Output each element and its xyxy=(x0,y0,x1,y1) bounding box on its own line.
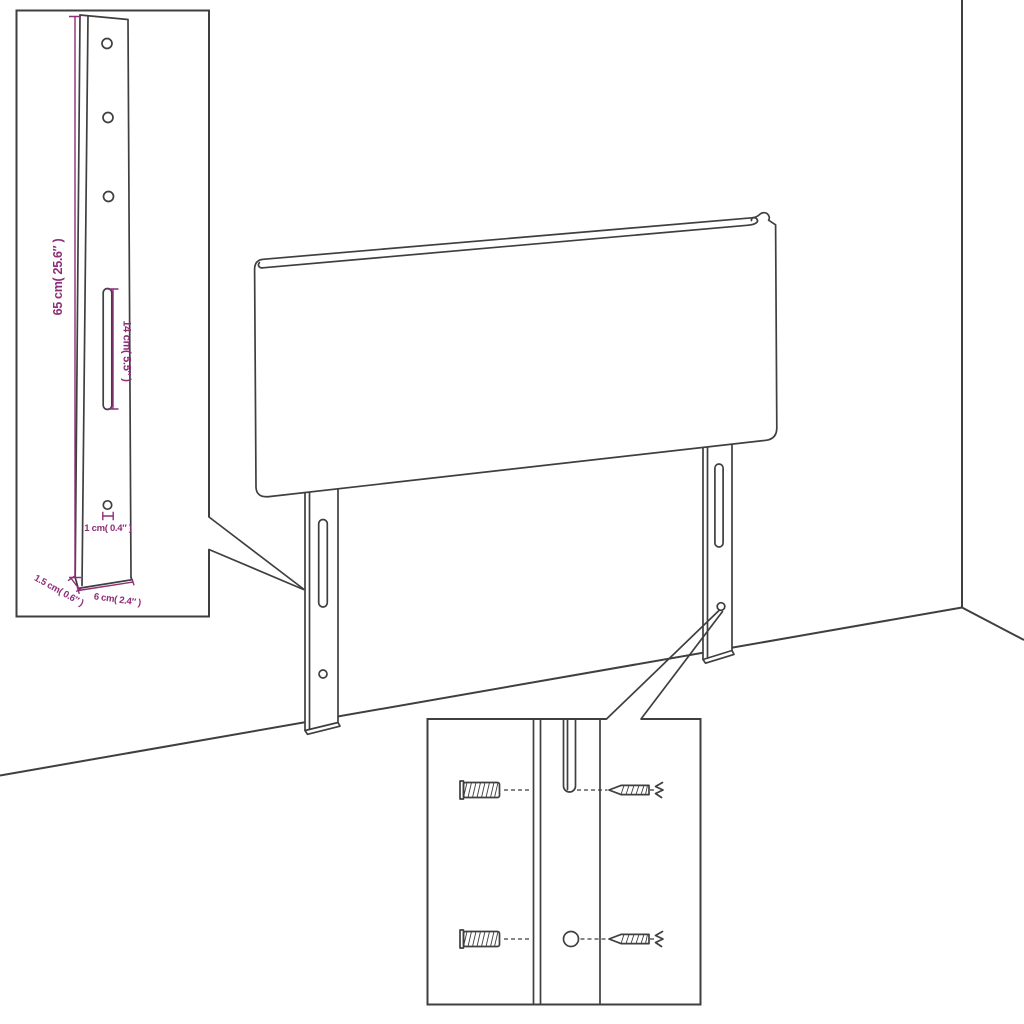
headboard-panel xyxy=(255,213,777,497)
bracket-hole-3 xyxy=(104,192,114,202)
floor-line-right xyxy=(962,608,1024,641)
callout-wedge-bottom-b xyxy=(641,612,723,720)
dimension-slot-label: 14 cm( 5.5″ ) xyxy=(121,320,133,382)
bracket-hole-2 xyxy=(103,113,113,123)
bracket-drawing xyxy=(75,15,131,588)
dimension-height-label: 65 cm( 25.6″ ) xyxy=(51,238,65,315)
dimension-hole-label: 1 cm( 0.4″ ) xyxy=(84,523,132,534)
detail-inset-mounting xyxy=(428,610,723,1005)
bracket-hole-1 xyxy=(102,39,112,49)
bracket-slot xyxy=(103,289,112,410)
bracket-small-hole xyxy=(103,501,111,509)
callout-wedge-left-b xyxy=(209,550,304,590)
headboard-dimension-diagram: 65 cm( 25.6″ ) 14 cm( 5.5″ ) 1 cm( 0.4″ … xyxy=(0,0,1024,1024)
diagram-canvas: 65 cm( 25.6″ ) 14 cm( 5.5″ ) 1 cm( 0.4″ … xyxy=(0,0,1024,1024)
dimension-width-label: 6 cm( 2.4″ ) xyxy=(93,591,142,609)
callout-wedge-left-a xyxy=(209,517,304,589)
dimension-hole: 1 cm( 0.4″ ) xyxy=(84,512,132,534)
callout-wedge-bottom-a xyxy=(607,610,720,719)
left-leg xyxy=(305,484,340,734)
